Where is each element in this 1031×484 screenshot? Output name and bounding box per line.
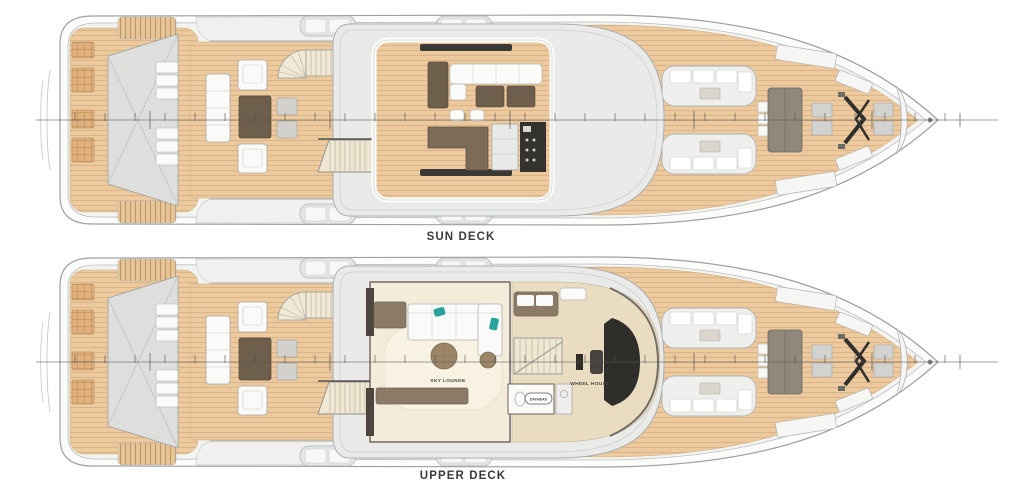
side-seat	[560, 288, 586, 300]
deck-plan-drawing: SUN DECK SKY LOUNGE	[0, 0, 1031, 484]
dayhead-label: DAYHEAD	[530, 398, 548, 402]
yacht-deck-plans: SUN DECK SKY LOUNGE	[0, 0, 1031, 484]
wheel-house-label: WHEEL HOUSE	[570, 381, 610, 387]
dining-table	[507, 86, 535, 107]
sideboard	[376, 388, 468, 404]
sun-deck-centerline	[36, 111, 998, 129]
bench-cushion	[517, 295, 534, 306]
sliding-door-post	[366, 388, 374, 436]
lounge-chaise	[478, 304, 502, 356]
sun-deck-label: SUN DECK	[427, 231, 496, 243]
upper-deck-plan: SKY LOUNGE DAYHEAD	[36, 257, 998, 467]
dining-table	[476, 86, 504, 107]
upper-deck-centerline	[36, 353, 998, 371]
wet-unit	[556, 384, 572, 414]
bar-cabinet	[428, 62, 448, 108]
sky-lounge-label: SKY LOUNGE	[430, 378, 466, 384]
bench-cushion	[536, 295, 553, 306]
sun-deck-plan	[36, 15, 998, 225]
upper-deck-label: UPPER DECK	[420, 470, 506, 482]
bar-fridge	[492, 124, 518, 170]
dayhead: DAYHEAD	[508, 384, 554, 414]
roof-rail	[420, 44, 512, 51]
sliding-door-post	[366, 288, 374, 336]
side-cabinet	[374, 302, 406, 328]
corner-cushion	[450, 84, 466, 100]
toilet	[515, 392, 525, 406]
